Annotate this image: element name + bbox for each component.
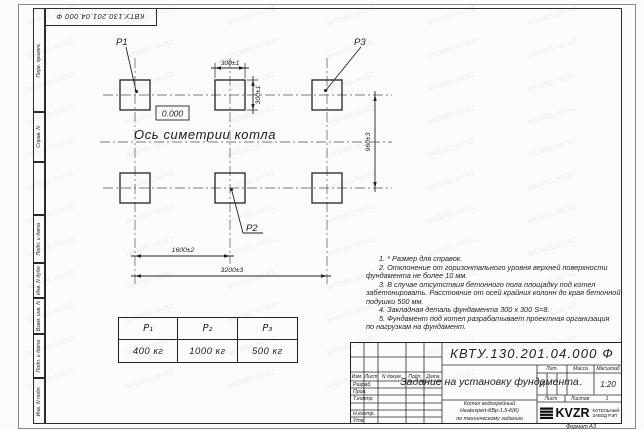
note-line: по нагрузкам на фундамент. [366,323,622,332]
frame-box-sprav-n: Справ. N [33,112,45,162]
load-point-p3-label: P3 [354,37,366,48]
tb-drawing-title: Задание на установку фундамента [442,366,537,399]
tb-lit-label: Лит. [537,365,567,373]
frame-box-inv-dubl: Инв. N дубл. [33,263,45,298]
frame-box-empty [33,162,45,215]
dim-960-text: 960±3 [365,132,372,151]
tb-logo-cell: KVZR КОТЕЛЬНЫЙ ЗАВОД РЭП [537,402,622,424]
frame-box-vzam-inv: Взам. инв. N [33,298,45,334]
load-point-p1-label: P1 [116,37,128,48]
center-lines [100,58,392,284]
tb-mass-label: Масса [567,365,594,373]
rotated-docnumber-stamp: КВТУ.130.201.04.000 Ф [45,8,157,26]
tb-sheets-label: Листов [565,395,595,402]
format-label: Формат А3 [540,423,622,430]
dim-300h-text: 300±1 [221,60,240,67]
dim-1600-text: 1600±2 [172,247,195,254]
tb-row-utv: Утв. [351,417,379,424]
frame-label: Инв. N подл. [36,386,42,416]
kvzr-logo-caption: КОТЕЛЬНЫЙ ЗАВОД РЭП [593,408,620,418]
load-point-p2-label: P2 [246,223,258,234]
technical-notes: 1. * Размер для справок. 2. Отклонение о… [366,255,622,332]
dim-3200-text: 3200±3 [221,267,244,274]
tb-row-prov: Пров. [351,388,379,395]
extension-lines [215,63,258,110]
load-table-header-p3: P₃ [238,318,297,340]
frame-label: Перв. примен. [36,43,42,77]
tb-row-tkontr: Т.контр. [351,395,380,403]
frame-box-perv-primen: Перв. примен. [33,8,45,112]
tb-subtitle: Котел водогрейный Heatexpert-КВр-1,5-К(К… [442,400,537,424]
tb-col-list: Лист [364,372,378,381]
load-table-value-p3: 500 кг [238,340,297,362]
frame-label: Инв. N дубл. [36,265,42,295]
load-table-header-p2: P₂ [178,318,237,340]
tb-row-razrab: Разраб. [351,381,379,388]
frame-label: Справ. N [36,126,42,148]
tb-scale-value: 1:20 [594,373,622,395]
tb-doc-number: КВТУ.130.201.04.000 Ф [442,342,622,365]
load-table-header-p1: P₁ [119,318,178,340]
symmetry-axis-label: Ось симетрии котла [134,127,276,142]
tb-lit-value: И [537,373,547,395]
tb-mass-value: - [567,373,594,395]
tb-sheets-value: 1 [597,395,617,402]
kvzr-logo-text: KVZR [556,406,590,420]
kvzr-logo-icon [540,407,553,420]
frame-label: Подп. и дата [36,340,42,372]
tb-sheet-label: Лист [537,395,565,402]
zero-level-text: 0.000 [162,109,184,119]
tb-row-nkontr: Н.контр. [351,410,380,417]
frame-label: Подп. и дата [36,223,42,255]
tb-subtitle-line: по техническому заданию [456,416,523,423]
tb-subtitle-line: Heatexpert-КВр-1,5-К(К) [460,408,519,415]
tb-col-izm: Изм. [350,372,364,381]
frame-box-podp-data-2: Подп. и дата [33,334,45,378]
frame-box-inv-podl: Инв. N подл. [33,378,45,424]
frame-label: Взам. инв. N [36,301,42,331]
load-table-value-p2: 1000 кг [178,340,237,362]
load-table: P₁ P₂ P₃ 400 кг 1000 кг 500 кг [118,317,298,363]
dimension-lines [131,68,375,276]
tb-subtitle-line: Котел водогрейный [464,401,515,408]
tb-scale-label: Масштаб [594,365,622,373]
load-table-value-p1: 400 кг [119,340,178,362]
drawing-sheet: NASHEL-NV.KZNASHEL-NV.KZNASHEL-NV.KZNASH… [0,0,644,430]
stamp-docnumber-text: КВТУ.130.201.04.000 Ф [56,12,144,21]
dim-300v-text: 300±1 [255,85,262,104]
frame-box-podp-data-1: Подп. и дата [33,215,45,263]
